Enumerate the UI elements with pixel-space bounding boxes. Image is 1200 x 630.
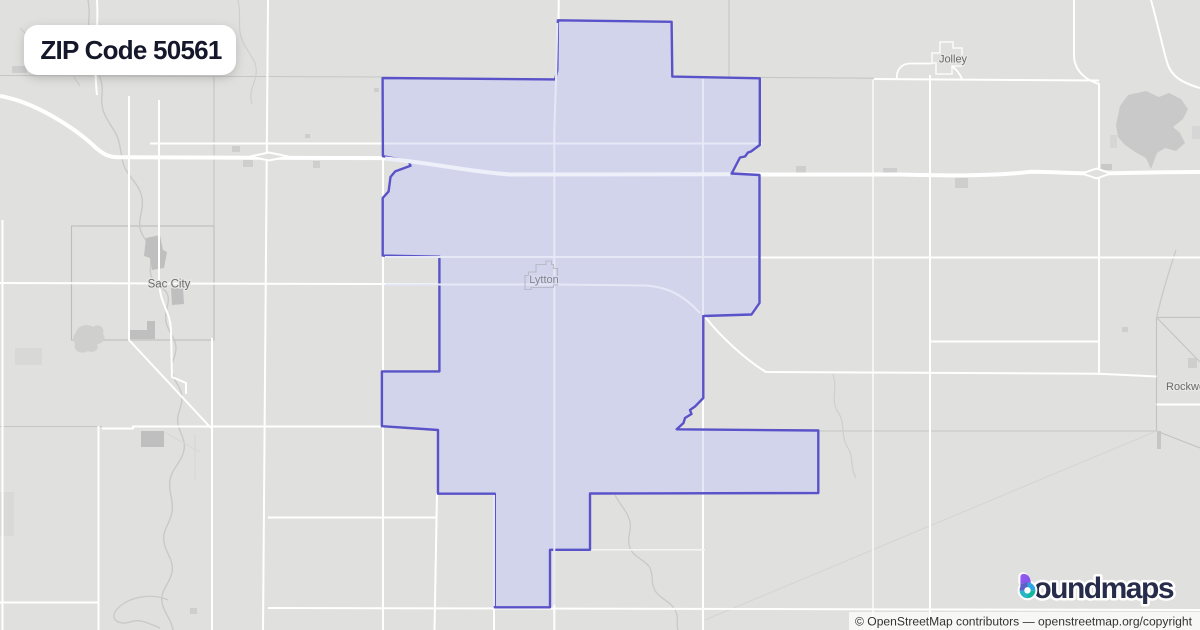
svg-text:Rockwe: Rockwe [1166, 381, 1200, 393]
svg-text:© OpenStreetMap contributors —: © OpenStreetMap contributors — openstree… [855, 615, 1193, 629]
svg-text:ZIP Code 50561: ZIP Code 50561 [40, 35, 222, 65]
svg-text:oundmaps: oundmaps [1033, 572, 1173, 605]
svg-text:Jolley: Jolley [939, 54, 968, 66]
svg-text:Lytton: Lytton [529, 274, 559, 286]
svg-text:Sac City: Sac City [148, 279, 191, 291]
